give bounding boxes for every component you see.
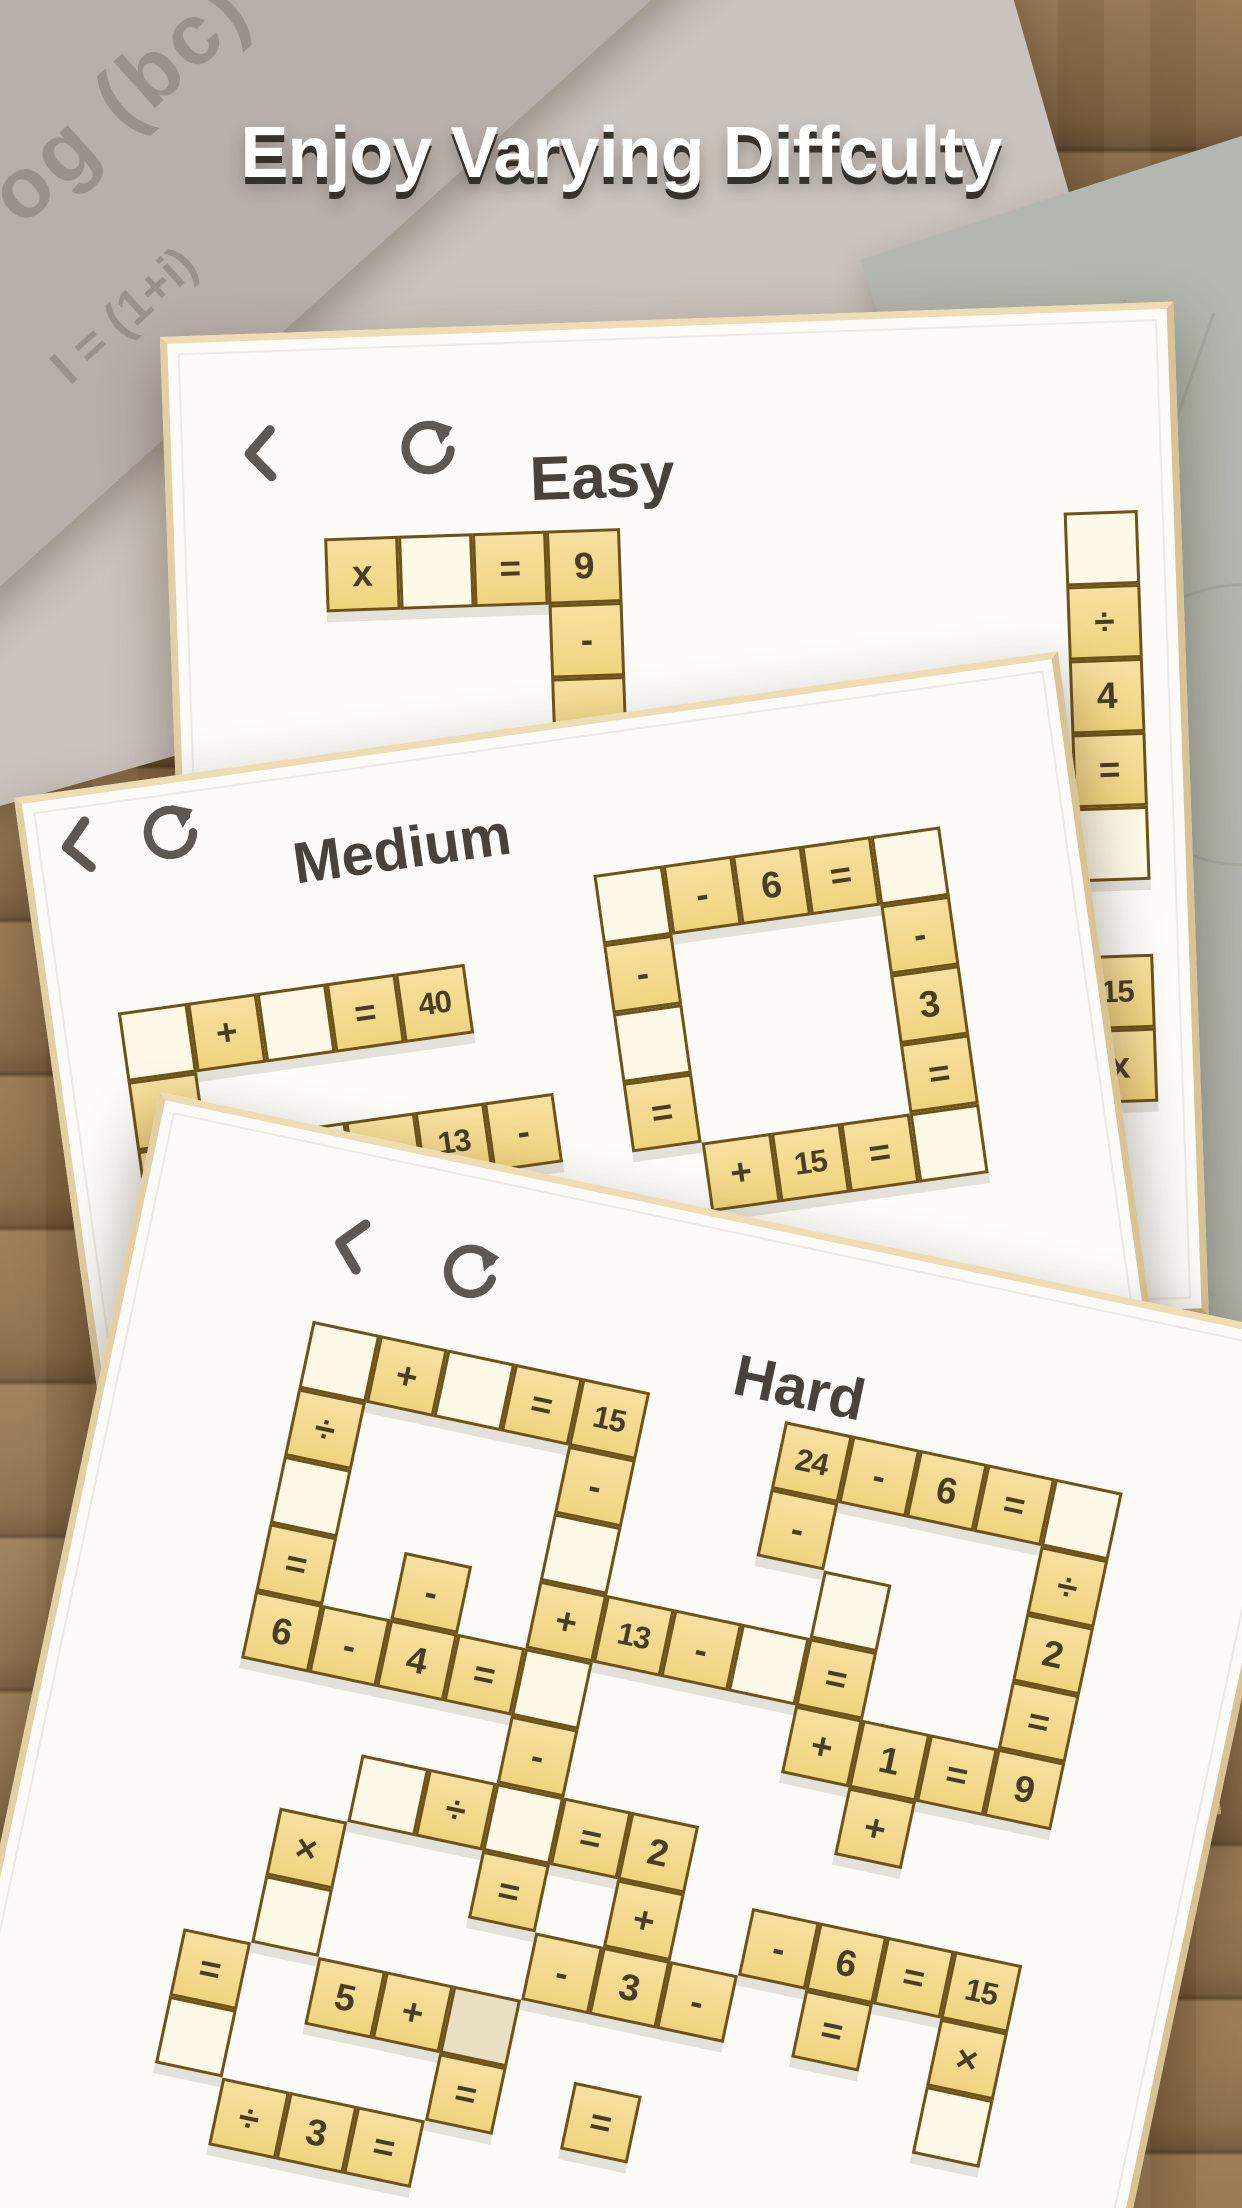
puzzle-tile[interactable]: ÷ — [1066, 584, 1143, 661]
puzzle-blank-cell[interactable] — [1064, 510, 1141, 587]
puzzle-tile[interactable]: = — [1071, 732, 1148, 809]
puzzle-tile[interactable]: = — [840, 1113, 919, 1192]
puzzle-tile[interactable]: + — [702, 1133, 781, 1212]
puzzle-blank-cell[interactable] — [871, 826, 950, 905]
puzzle-blank-cell[interactable] — [251, 1875, 333, 1957]
puzzle-blank-cell[interactable] — [398, 533, 475, 610]
app-store-screenshot: { "title": "Enjoy Varying Diffculty", "p… — [0, 0, 1242, 2208]
puzzle-blank-cell[interactable] — [155, 1996, 237, 2078]
page-title: Enjoy Varying Diffculty — [0, 112, 1242, 194]
puzzle-tile[interactable]: = — [343, 2106, 425, 2188]
puzzle-tile[interactable]: 3 — [890, 965, 969, 1044]
puzzle-tile[interactable]: = — [623, 1073, 702, 1152]
puzzle-tile[interactable]: = — [560, 2082, 642, 2164]
puzzle-tile[interactable]: = — [472, 531, 549, 608]
puzzle-blank-cell[interactable] — [118, 1003, 197, 1082]
puzzle-tile[interactable]: - — [656, 1961, 738, 2043]
puzzle-blank-cell[interactable] — [613, 1004, 692, 1083]
puzzle-tile[interactable]: = — [791, 1990, 873, 2072]
puzzle-tile[interactable]: 15 — [771, 1123, 850, 1202]
puzzle-tile[interactable]: - — [663, 856, 742, 935]
puzzle-tile[interactable]: - — [484, 1093, 563, 1172]
puzzle-blank-cell[interactable] — [912, 2086, 994, 2168]
puzzle-tile[interactable]: = — [900, 1034, 979, 1113]
puzzle-tile[interactable]: 9 — [983, 1749, 1065, 1831]
puzzle-tile[interactable]: 9 — [546, 528, 623, 605]
puzzle-tile[interactable]: - — [549, 602, 626, 679]
puzzle-tile[interactable]: = — [425, 2053, 507, 2135]
puzzle-tile[interactable]: x — [324, 536, 401, 613]
puzzle-tile[interactable]: 4 — [1069, 658, 1146, 735]
puzzle-blank-cell[interactable] — [910, 1104, 989, 1183]
puzzle-tile[interactable]: - — [603, 935, 682, 1014]
puzzle-tile[interactable]: = — [468, 1851, 550, 1933]
puzzle-tile[interactable]: = — [326, 974, 405, 1053]
puzzle-tile[interactable]: = — [801, 836, 880, 915]
puzzle-blank-cell[interactable] — [593, 865, 672, 944]
puzzle-blank-cell[interactable] — [257, 983, 336, 1062]
puzzle-tile[interactable]: - — [757, 1489, 839, 1571]
puzzle-tile[interactable]: 40 — [395, 964, 474, 1043]
puzzle-tile[interactable]: + — [834, 1787, 916, 1869]
puzzle-tile[interactable]: - — [880, 896, 959, 975]
puzzle-tile[interactable]: 6 — [732, 846, 811, 925]
puzzle-tile[interactable]: + — [187, 993, 266, 1072]
